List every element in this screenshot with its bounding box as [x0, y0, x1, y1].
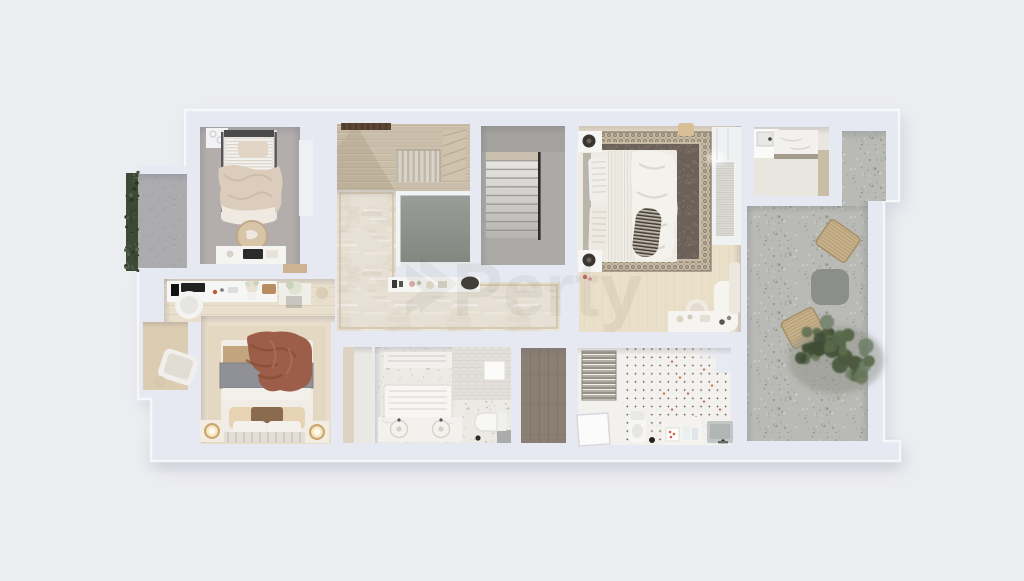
svg-text:Perty: Perty	[452, 248, 642, 333]
